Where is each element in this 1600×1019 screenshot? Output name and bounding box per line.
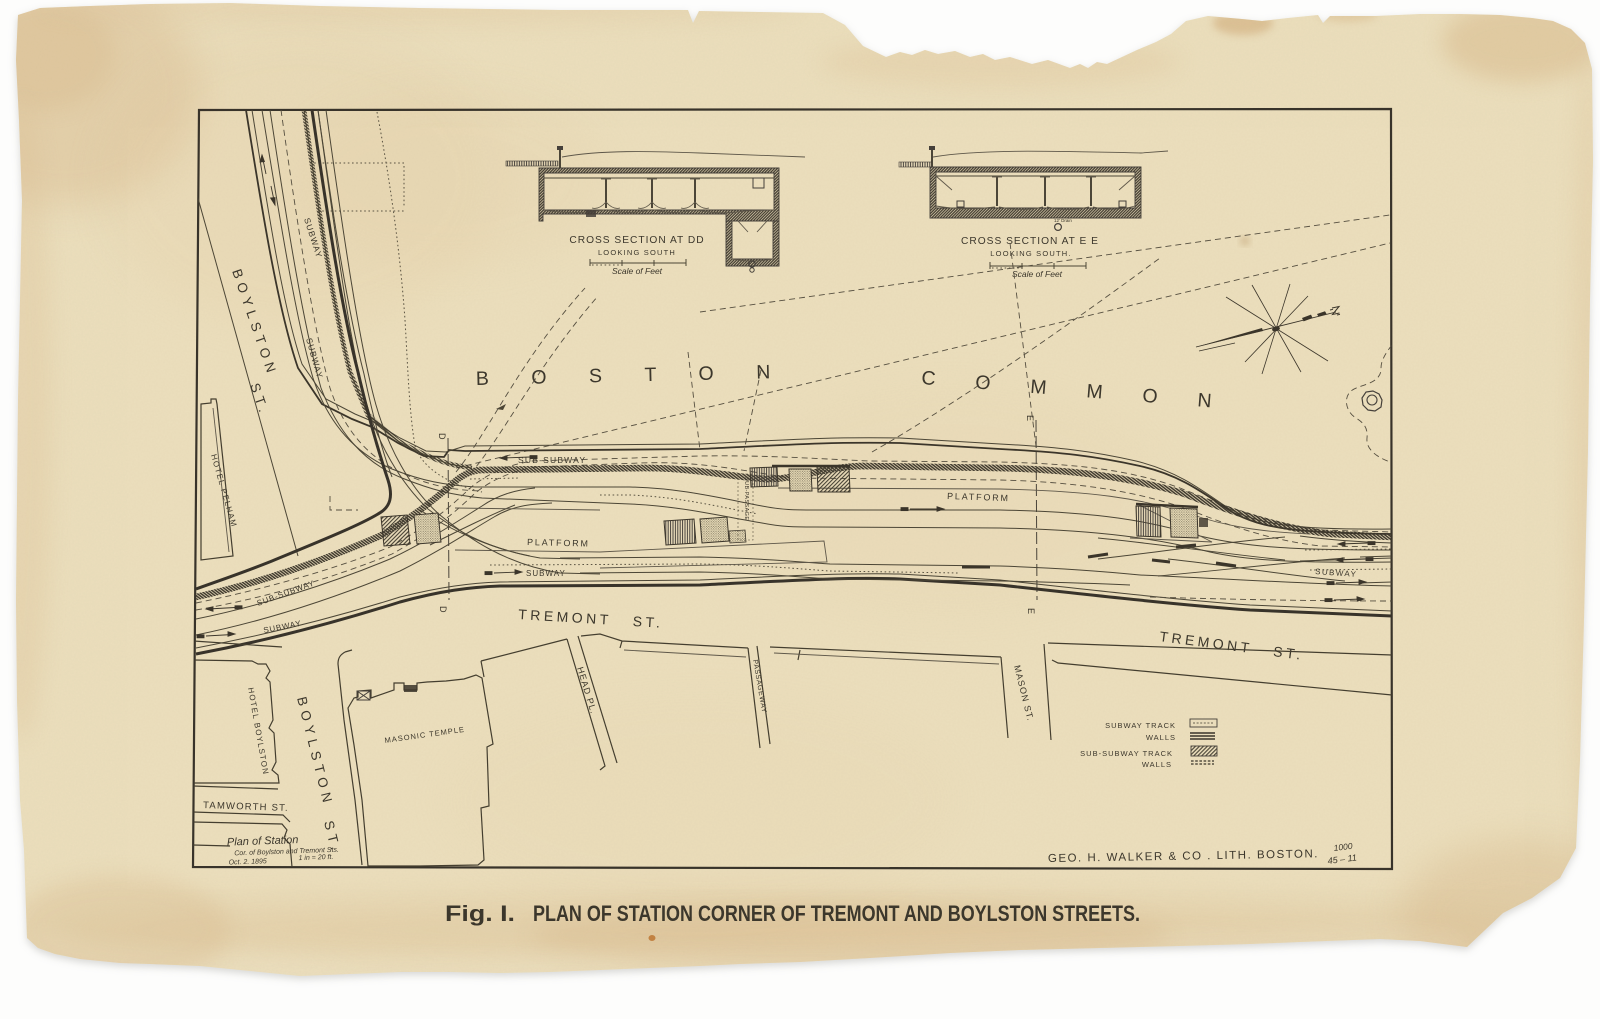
svg-text:SUB-PASSAGE: SUB-PASSAGE (743, 477, 749, 520)
svg-text:WALLS: WALLS (1142, 760, 1172, 769)
svg-text:Plan of Station: Plan of Station (227, 834, 299, 848)
svg-text:SUB-SUBWAY TRACK: SUB-SUBWAY TRACK (1080, 749, 1173, 758)
svg-text:SUBWAY TRACK: SUBWAY TRACK (1105, 721, 1176, 730)
svg-text:D: D (438, 606, 448, 613)
svg-text:SUBWAY: SUBWAY (526, 569, 566, 578)
svg-text:D: D (437, 433, 447, 440)
svg-text:PLAN OF STATION CORNER OF TREM: PLAN OF STATION CORNER OF TREMONT AND BO… (533, 901, 1140, 926)
svg-text:CROSS SECTION AT DD: CROSS SECTION AT DD (569, 235, 704, 246)
svg-text:E: E (1026, 608, 1036, 614)
svg-text:PLATFORM: PLATFORM (527, 537, 590, 549)
svg-text:E: E (1025, 415, 1035, 421)
svg-text:SUB-SUBWAY: SUB-SUBWAY (518, 455, 586, 465)
svg-text:WALLS: WALLS (1146, 733, 1176, 742)
svg-text:Oct. 2. 1895: Oct. 2. 1895 (229, 858, 267, 866)
svg-text:12' Drain: 12' Drain (1054, 218, 1072, 223)
svg-text:Scale of Feet: Scale of Feet (612, 266, 663, 276)
svg-text:LOOKING SOUTH.: LOOKING SOUTH. (990, 249, 1071, 258)
svg-text:CROSS SECTION AT E E: CROSS SECTION AT E E (961, 236, 1099, 247)
svg-text:LOOKING SOUTH: LOOKING SOUTH (598, 248, 676, 257)
svg-text:1 in = 20 ft.: 1 in = 20 ft. (298, 854, 333, 862)
svg-text:Fig. I.: Fig. I. (445, 901, 515, 926)
svg-text:Scale of Feet: Scale of Feet (1012, 269, 1063, 279)
